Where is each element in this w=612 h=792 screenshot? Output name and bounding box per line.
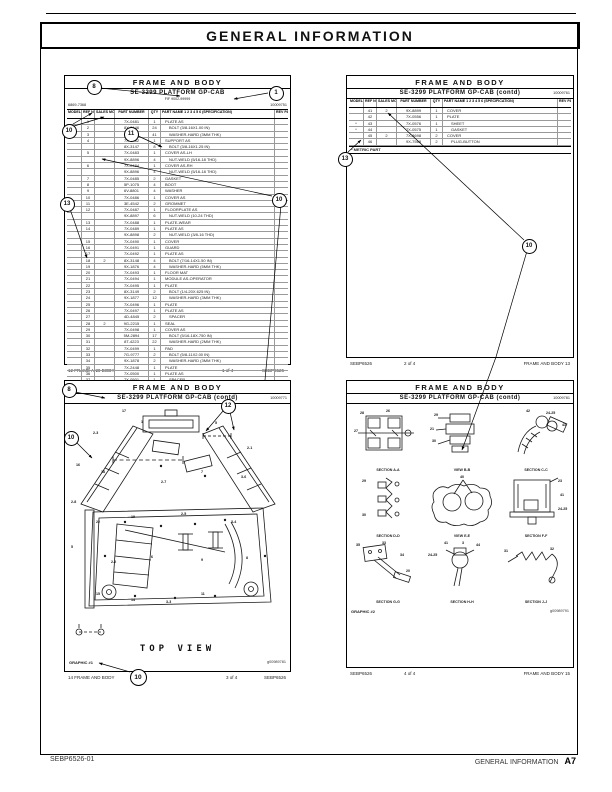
panel2-header: FRAME AND BODY <box>347 78 573 89</box>
document-number: SEBP6526-01 <box>50 756 94 763</box>
drawing-ref-label: 15 <box>96 593 100 597</box>
drawing-ref-label: 40 <box>460 476 464 480</box>
section-caption: SECTION G-G <box>352 600 424 604</box>
drawing-ref-label: 11 <box>201 593 205 597</box>
drawing-ref-label: 43 <box>562 424 566 428</box>
view-cell-bb: 292130 VIEW B-B <box>426 408 498 472</box>
drawing-ref-label: 32 <box>550 548 554 552</box>
drawing-ref-label: 21 <box>430 428 434 432</box>
drawing-ref-label: 30 <box>362 514 366 518</box>
section-caption: VIEW B-B <box>426 468 498 472</box>
drawing-ref-label: 29 <box>362 480 366 484</box>
drawing-ref-label: 1 <box>141 421 143 425</box>
drawing-ref-label: 41 <box>560 494 564 498</box>
drawing-ref-label: 17 <box>122 410 126 414</box>
section-cell-hh: 4134424-25 SECTION H-H <box>426 540 498 604</box>
drawing-ref-label: 26 <box>386 410 390 414</box>
drawing-ref-label: 3 <box>462 542 464 546</box>
drawing-ref-label: 7 <box>201 471 203 475</box>
drawing-ref-label: 2-1 <box>247 447 252 451</box>
drawing-ref-label: 2-2 <box>111 561 116 565</box>
drawing-ref-label: 16 <box>76 464 80 468</box>
drawing-ref-label: 20 <box>406 570 410 574</box>
callout-13-panel2: 13 <box>338 152 353 167</box>
drawing-ref-label: 24-25 <box>428 554 437 558</box>
callout-8-panel3: 8 <box>62 383 77 398</box>
panel1-parts-table: MODEL REF NO SALES MOD PART NUMBER QTY P… <box>67 109 288 402</box>
drawing-ref-label: 3-3 <box>166 601 171 605</box>
callout-12: 12 <box>221 399 236 414</box>
drawing-ref-label: 19 <box>131 516 135 520</box>
drawing-ref-label: 41 <box>444 542 448 546</box>
callout-11: 11 <box>124 127 139 142</box>
panel3-drawing-labels: 172-3152-116182-773-62-822192-53-452-269… <box>65 406 292 656</box>
callout-10-left: 10 <box>62 124 77 139</box>
drawing-ref-label: 44 <box>476 544 480 548</box>
drawing-ref-label: 2-5 <box>181 513 186 517</box>
section-caption: SECTION H-H <box>426 600 498 604</box>
drawing-ref-label: 23 <box>558 480 562 484</box>
panel2-footer-right: FRAME AND BODY 13 <box>524 361 570 366</box>
graphic1-label: GRAPHIC #1 <box>69 660 93 665</box>
panel3-footer-right: SEBP6526 <box>264 675 286 680</box>
section-caption: SECTION F-F <box>500 534 572 538</box>
section-cell-gg: 35333420 SECTION G-G <box>352 540 424 604</box>
panel2-parts-table: MODEL REF NO SALES MOD PART NUMBER QTY P… <box>349 98 571 154</box>
drawing-ref-label: 18 <box>101 471 105 475</box>
page-footer-right: GENERAL INFORMATION A7 <box>475 756 576 766</box>
section-caption: SECTION D-D <box>352 534 424 538</box>
graphic2-label: GRAPHIC #2 <box>351 609 375 614</box>
section-caption: VIEW E-E <box>426 534 498 538</box>
drawing-ref-label: 2-7 <box>161 481 166 485</box>
panel4-subtitle: SE-3299 PLATFORM GP-CAB (contd) <box>347 395 573 404</box>
drawing-ref-label: 30 <box>432 440 436 444</box>
panel1-table-header-row: MODEL REF NO SALES MOD PART NUMBER QTY P… <box>67 109 288 119</box>
top-view-caption: TOP VIEW <box>65 644 290 654</box>
panel1-table-body: 1 7X-0481 1 PLATE AS 2 8X-3146 24 BOLT (… <box>67 119 288 402</box>
section-cell-cc: 4224-2543 SECTION C-C <box>500 408 572 472</box>
view-cell-ee: 40 VIEW E-E <box>426 474 498 538</box>
callout-8: 8 <box>87 80 102 95</box>
panel4-footer-page: 4 of 4 <box>404 671 415 676</box>
panel4-footer-right: FRAME AND BODY 15 <box>524 671 570 676</box>
drawing-ref-label: 3-4 <box>231 521 236 525</box>
footer-section-label: GENERAL INFORMATION <box>475 759 559 766</box>
drawing-ref-label: 2-8 <box>71 501 76 505</box>
callout-10-graphic1: 10 <box>130 669 147 686</box>
drawing-ref-label: 14 <box>131 599 135 603</box>
drawing-ref-label: 2-3 <box>93 432 98 436</box>
panel4-code-right: 10009781 <box>553 396 570 400</box>
drawing-ref-label: 33 <box>382 542 386 546</box>
drawing-ref-label: 28 <box>360 412 364 416</box>
panel1-code-right: 10009751 <box>270 103 287 107</box>
panel-top-view-drawing: FRAME AND BODY SE-3299 PLATFORM GP-CAB (… <box>64 380 291 672</box>
drawing-ref-label: 5 <box>215 422 217 426</box>
panel2-code-right: 10009761 <box>553 91 570 95</box>
section-cell-ff: 234124-25 SECTION F-F <box>500 474 572 538</box>
callout-10-right: 10 <box>272 193 287 208</box>
panel1-subtitle2: FIF 9002-99999 <box>65 97 290 101</box>
drawing-ref-label: 22 <box>96 521 100 525</box>
drawing-ref-label: 34 <box>400 554 404 558</box>
drawing-ref-label: 5 <box>71 546 73 550</box>
drawing-ref-label: 27 <box>354 430 358 434</box>
section-caption: SECTION J-J <box>500 600 572 604</box>
panel2-footer-page: 2 of 4 <box>404 361 415 366</box>
section-cell-aa: 282627 SECTION A-A <box>352 408 424 472</box>
page-title: GENERAL INFORMATION <box>206 28 414 44</box>
callout-1: 1 <box>269 86 284 101</box>
drawing-ref-label: 6 <box>151 556 153 560</box>
drawing-ref-label: 42 <box>526 410 530 414</box>
drawing-ref-label: 31 <box>504 550 508 554</box>
drawing-ref-label: 8 <box>246 557 248 561</box>
panel3-subtitle: SE-3299 PLATFORM GP-CAB (contd) <box>65 395 290 404</box>
panel3-footer-page: 3 of 4 <box>226 675 237 680</box>
drawing-ref-label: 9 <box>201 559 203 563</box>
callout-10-panel3: 10 <box>64 431 79 446</box>
drawing-ref-label: 35 <box>356 544 360 548</box>
section-cell-dd: 2930 SECTION D-D <box>352 474 424 538</box>
graphic1-image-code: g00989781 <box>267 660 286 664</box>
page-title-box: GENERAL INFORMATION <box>40 22 580 49</box>
panel2-table-header-row: MODEL REF NO SALES MOD PART NUMBER QTY P… <box>349 98 571 108</box>
section-caption: SECTION A-A <box>352 468 424 472</box>
drawing-ref-label: 24-25 <box>546 412 555 416</box>
graphic2-image-code: g00989791 <box>550 609 569 613</box>
drawing-ref-label: 24-25 <box>558 508 567 512</box>
panel4-footer-left: SEBP6526 <box>350 671 372 676</box>
panel2-footer-left: SEBP6526 <box>350 361 372 366</box>
panel1-code-left: 6869-7368 <box>68 103 86 107</box>
panel-frame-and-body-table-1: FRAME AND BODY SE-3299 PLATFORM GP-CAB F… <box>64 75 291 365</box>
manual-page: { "page": { "title": "GENERAL INFORMATIO… <box>0 0 612 792</box>
panel4-header: FRAME AND BODY <box>347 383 573 394</box>
section-caption: SECTION C-C <box>500 468 572 472</box>
panel2-table-body: 41 2 9X-8899 1 COVER 42 7X-0556 1 PLATE <box>349 108 571 146</box>
drawing-ref-label: 3-6 <box>241 476 246 480</box>
drawing-ref-label: 29 <box>434 414 438 418</box>
callout-10-panel2: 10 <box>522 239 537 254</box>
page-number: A7 <box>564 756 576 766</box>
section-detail-grid: 282627 SECTION A-A 292130 VIEW B-B 42 <box>352 408 568 604</box>
top-rule <box>46 13 576 14</box>
panel-frame-and-body-table-2: FRAME AND BODY SE-3299 PLATFORM GP-CAB (… <box>346 75 574 358</box>
callout-13-left: 13 <box>60 197 75 212</box>
panel3-code-right: 10009771 <box>270 396 287 400</box>
metric-part-note: * METRIC PART <box>349 146 571 154</box>
panel3-footer-left: 14 FRAME AND BODY <box>68 675 115 680</box>
panel3-header: FRAME AND BODY <box>65 383 290 394</box>
section-cell-jj: 3132 SECTION J-J <box>500 540 572 604</box>
